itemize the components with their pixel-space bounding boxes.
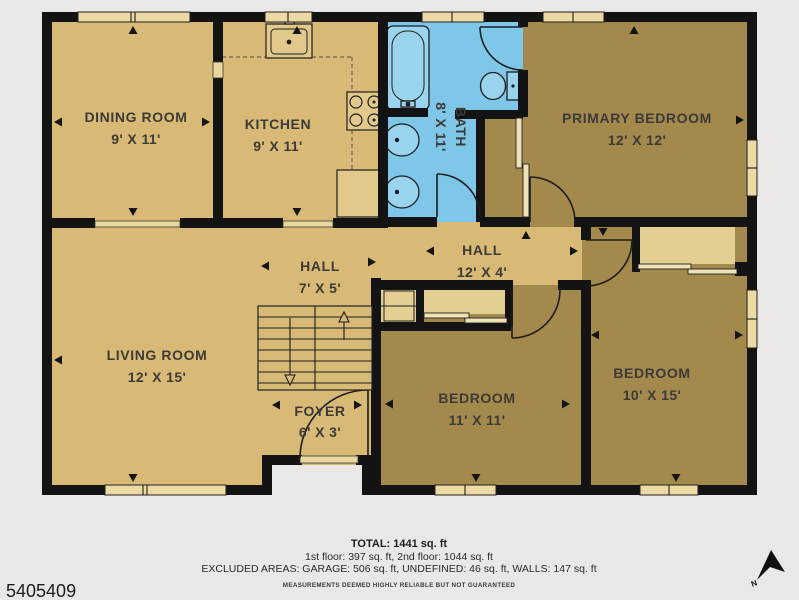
dining-room-dims: 9' X 11' — [111, 131, 161, 147]
total-area-text: TOTAL: 1441 sq. ft — [351, 538, 448, 550]
entry-recess — [271, 465, 367, 505]
primary-bedroom-dims: 12' X 12' — [608, 132, 667, 148]
bath-sink-icon-2 — [385, 176, 419, 208]
living-room-label: LIVING ROOM — [107, 347, 208, 363]
hall-main-label: HALL — [462, 242, 502, 258]
foyer-label: FOYER — [294, 403, 345, 419]
opening-kitchen-hall — [283, 221, 333, 227]
kitchen-label: KITCHEN — [245, 116, 311, 132]
living-room-dims: 12' X 15' — [128, 369, 187, 385]
floor-areas-text: 1st floor: 397 sq. ft, 2nd floor: 1044 s… — [305, 551, 493, 563]
dining-room-label: DINING ROOM — [84, 109, 187, 125]
closet-bedroom-a — [424, 290, 505, 314]
area-summary: TOTAL: 1441 sq. ft 1st floor: 397 sq. ft… — [201, 538, 596, 589]
primary-closet-nook — [481, 117, 518, 217]
north-label: N — [750, 578, 759, 589]
excluded-areas-text: EXCLUDED AREAS: GARAGE: 506 sq. ft, UNDE… — [201, 563, 596, 575]
bath-sink-icon — [385, 124, 419, 156]
north-arrow-icon — [757, 550, 785, 580]
stove-icon — [347, 92, 383, 130]
kitchen-dims: 9' X 11' — [253, 138, 303, 154]
bath-dims: 8' X 11' — [433, 102, 449, 152]
compass: N — [750, 550, 785, 589]
mls-number: 5405409 — [6, 581, 76, 600]
closet-bedroom-b — [640, 227, 735, 264]
front-door-threshold — [300, 456, 358, 463]
bedroom-a-label: BEDROOM — [438, 390, 515, 406]
bathtub-icon — [387, 26, 429, 110]
disclaimer-text: MEASUREMENTS DEEMED HIGHLY RELIABLE BUT … — [283, 582, 516, 589]
foyer-dims: 6' X 3' — [299, 424, 341, 440]
hall-small-dims: 7' X 5' — [299, 280, 341, 296]
wall-niche — [213, 62, 223, 78]
hall-main-dims: 12' X 4' — [457, 264, 507, 280]
staircase — [258, 306, 372, 390]
floor-plan-svg: DINING ROOM 9' X 11' KITCHEN 9' X 11' BA… — [0, 0, 799, 600]
opening-dining-hall — [95, 221, 180, 227]
floor-plan-page: DINING ROOM 9' X 11' KITCHEN 9' X 11' BA… — [0, 0, 799, 600]
kitchen-counter — [337, 170, 383, 217]
toilet-icon — [481, 72, 522, 100]
bedroom-b-dims: 10' X 15' — [623, 387, 682, 403]
primary-bedroom-label: PRIMARY BEDROOM — [562, 110, 712, 126]
bedroom-a-dims: 11' X 11' — [449, 412, 506, 428]
hall-small-label: HALL — [300, 258, 340, 274]
bedroom-b-label: BEDROOM — [613, 365, 690, 381]
bath-label: BATH — [453, 107, 469, 147]
